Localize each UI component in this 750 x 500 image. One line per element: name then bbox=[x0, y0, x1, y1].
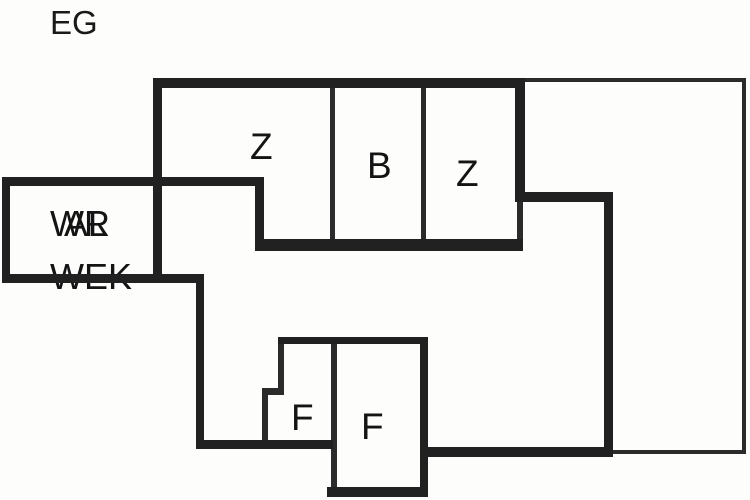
wall-right-vertical bbox=[604, 192, 613, 457]
room-label-al-overlapping: AL bbox=[64, 206, 108, 242]
wall-z1-b-divider bbox=[330, 86, 335, 241]
wall-right-horizontal bbox=[517, 192, 613, 202]
outline-right-area-bottom bbox=[613, 450, 746, 454]
wall-annex-left bbox=[2, 177, 10, 283]
wall-top-exterior bbox=[153, 78, 525, 88]
wall-bottom-right bbox=[420, 447, 613, 457]
wall-rooms-bottom bbox=[255, 239, 523, 251]
room-label-z2: Z bbox=[456, 155, 479, 192]
wall-f1-left-upper bbox=[278, 337, 284, 392]
room-label-b: B bbox=[367, 147, 392, 184]
wall-f2-right bbox=[420, 337, 428, 497]
outline-right-area-right bbox=[742, 78, 746, 454]
wall-hall-left bbox=[196, 274, 204, 449]
wall-annex-top bbox=[2, 177, 263, 186]
floor-title: EG bbox=[50, 4, 98, 42]
room-label-f1: F bbox=[291, 399, 314, 436]
wall-z2-right bbox=[515, 78, 525, 202]
wall-b-z2-divider bbox=[421, 86, 426, 241]
wall-f-top bbox=[278, 337, 428, 344]
room-label-z1: Z bbox=[250, 128, 273, 165]
wall-f1-step-vertical bbox=[262, 388, 268, 440]
outline-right-area-top bbox=[525, 78, 746, 82]
wall-annex-bottom bbox=[2, 274, 204, 283]
wall-f1-f2-divider bbox=[331, 337, 337, 492]
wall-f2-protrusion-bottom bbox=[327, 487, 428, 497]
room-label-f2: F bbox=[361, 408, 384, 445]
floorplan-canvas: EG Z B Z F F WR AL WEK bbox=[0, 0, 750, 500]
wall-bottom-left bbox=[196, 440, 333, 449]
